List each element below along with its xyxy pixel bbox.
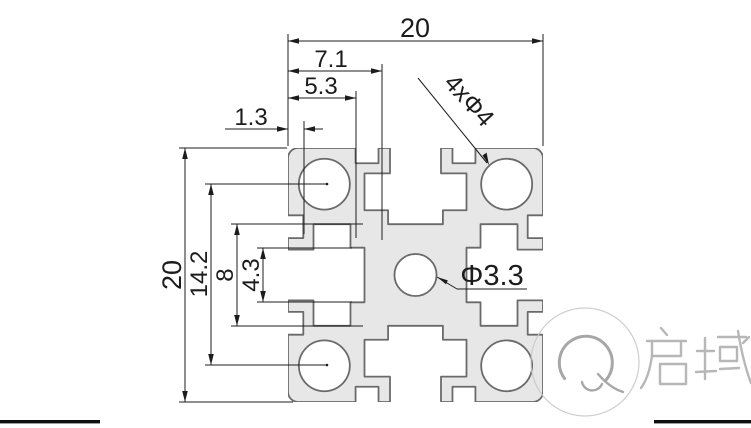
dim-1-3: 1.3 — [234, 104, 267, 131]
dim-left-20: 20 — [157, 260, 187, 290]
dim-top-20: 20 — [400, 13, 430, 43]
dim-5-3: 5.3 — [304, 73, 337, 100]
bottom-border-left — [0, 420, 100, 423]
technical-drawing-canvas: 20 7.1 5.3 1.3 20 14.2 8 4.3 4xΦ4 Φ3.3 — [0, 0, 751, 428]
watermark-outer-circle-icon — [531, 308, 639, 416]
callout-center-hole: Φ3.3 — [460, 260, 523, 292]
watermark-q-tail-icon — [582, 374, 623, 392]
dimension-texts: 20 7.1 5.3 1.3 20 14.2 8 4.3 4xΦ4 Φ3.3 — [157, 13, 524, 297]
dim-14-2: 14.2 — [186, 251, 213, 298]
dim-4-3: 4.3 — [238, 258, 265, 291]
dimension-overlay: 20 7.1 5.3 1.3 20 14.2 8 4.3 4xΦ4 Φ3.3 — [0, 0, 751, 428]
watermark-logo: 启域 — [531, 308, 751, 416]
watermark-text: 启域 — [645, 327, 745, 383]
watermark-q-icon — [559, 336, 612, 380]
dimension-lines — [179, 34, 543, 402]
dim-7-1: 7.1 — [314, 46, 347, 73]
arrowheads — [182, 38, 543, 402]
callout-corner-holes: 4xΦ4 — [438, 69, 499, 133]
dim-8: 8 — [212, 268, 239, 281]
bottom-border-right — [654, 420, 751, 423]
